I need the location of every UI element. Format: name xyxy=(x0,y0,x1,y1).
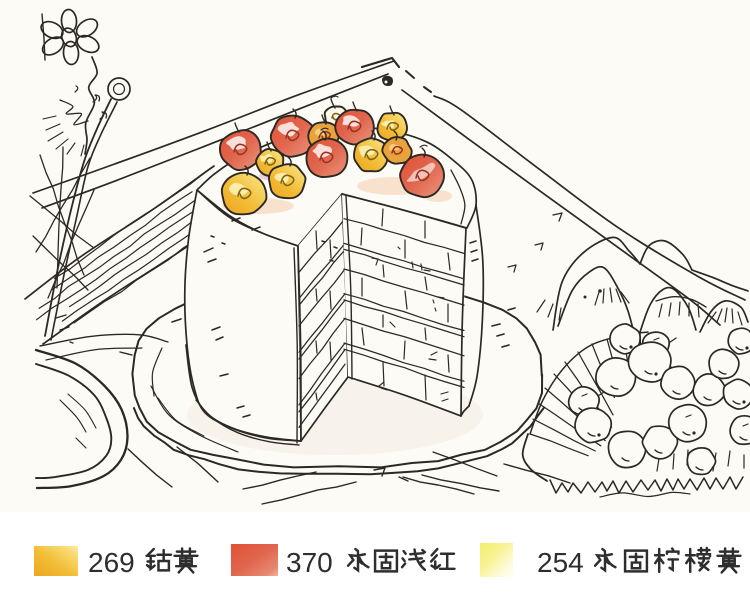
svg-text:254: 254 xyxy=(537,547,584,578)
svg-text:269: 269 xyxy=(88,547,135,578)
svg-text:370: 370 xyxy=(286,547,333,578)
